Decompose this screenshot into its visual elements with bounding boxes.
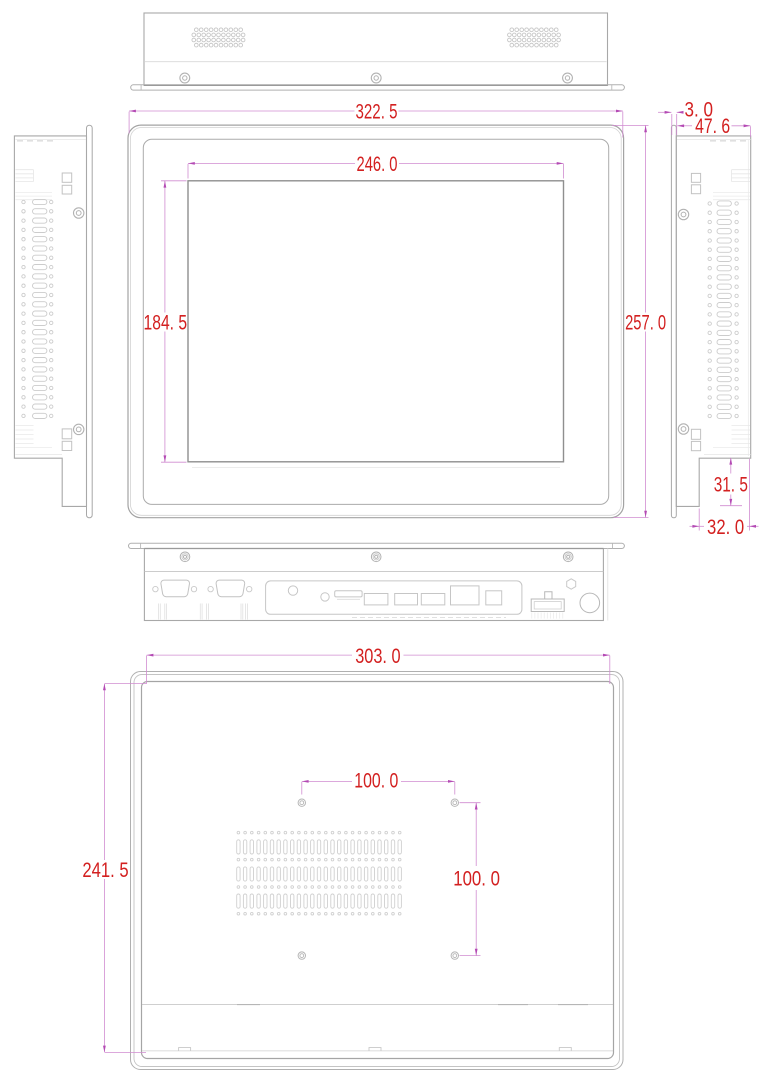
svg-text:31. 5: 31. 5 [714, 474, 748, 497]
svg-text:100. 0: 100. 0 [354, 770, 398, 793]
svg-text:257. 0: 257. 0 [625, 311, 666, 334]
svg-text:246. 0: 246. 0 [357, 153, 398, 176]
svg-text:322. 5: 322. 5 [356, 101, 398, 124]
svg-text:47. 6: 47. 6 [695, 115, 730, 138]
svg-text:100. 0: 100. 0 [453, 868, 500, 891]
svg-text:241. 5: 241. 5 [82, 859, 128, 882]
svg-text:184. 5: 184. 5 [144, 311, 188, 334]
svg-text:32. 0: 32. 0 [707, 516, 744, 539]
svg-text:303. 0: 303. 0 [355, 645, 400, 668]
